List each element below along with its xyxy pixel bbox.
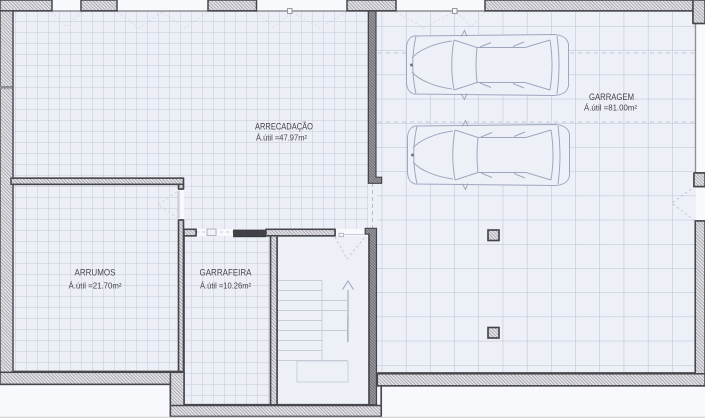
svg-text:ARRECADAÇÃO: ARRECADAÇÃO [255,122,313,132]
svg-text:Á.útil =21.70m²: Á.útil =21.70m² [69,282,122,291]
svg-text:Á.útil =47.97m²: Á.útil =47.97m² [256,134,307,143]
svg-text:GARRAFEIRA: GARRAFEIRA [200,268,252,278]
svg-text:Á.útil =10.26m²: Á.útil =10.26m² [200,282,251,291]
svg-text:GARRAGEM: GARRAGEM [589,92,634,102]
svg-text:Á.útil =81.00m²: Á.útil =81.00m² [584,104,637,113]
svg-text:ARRUMOS: ARRUMOS [75,268,116,278]
